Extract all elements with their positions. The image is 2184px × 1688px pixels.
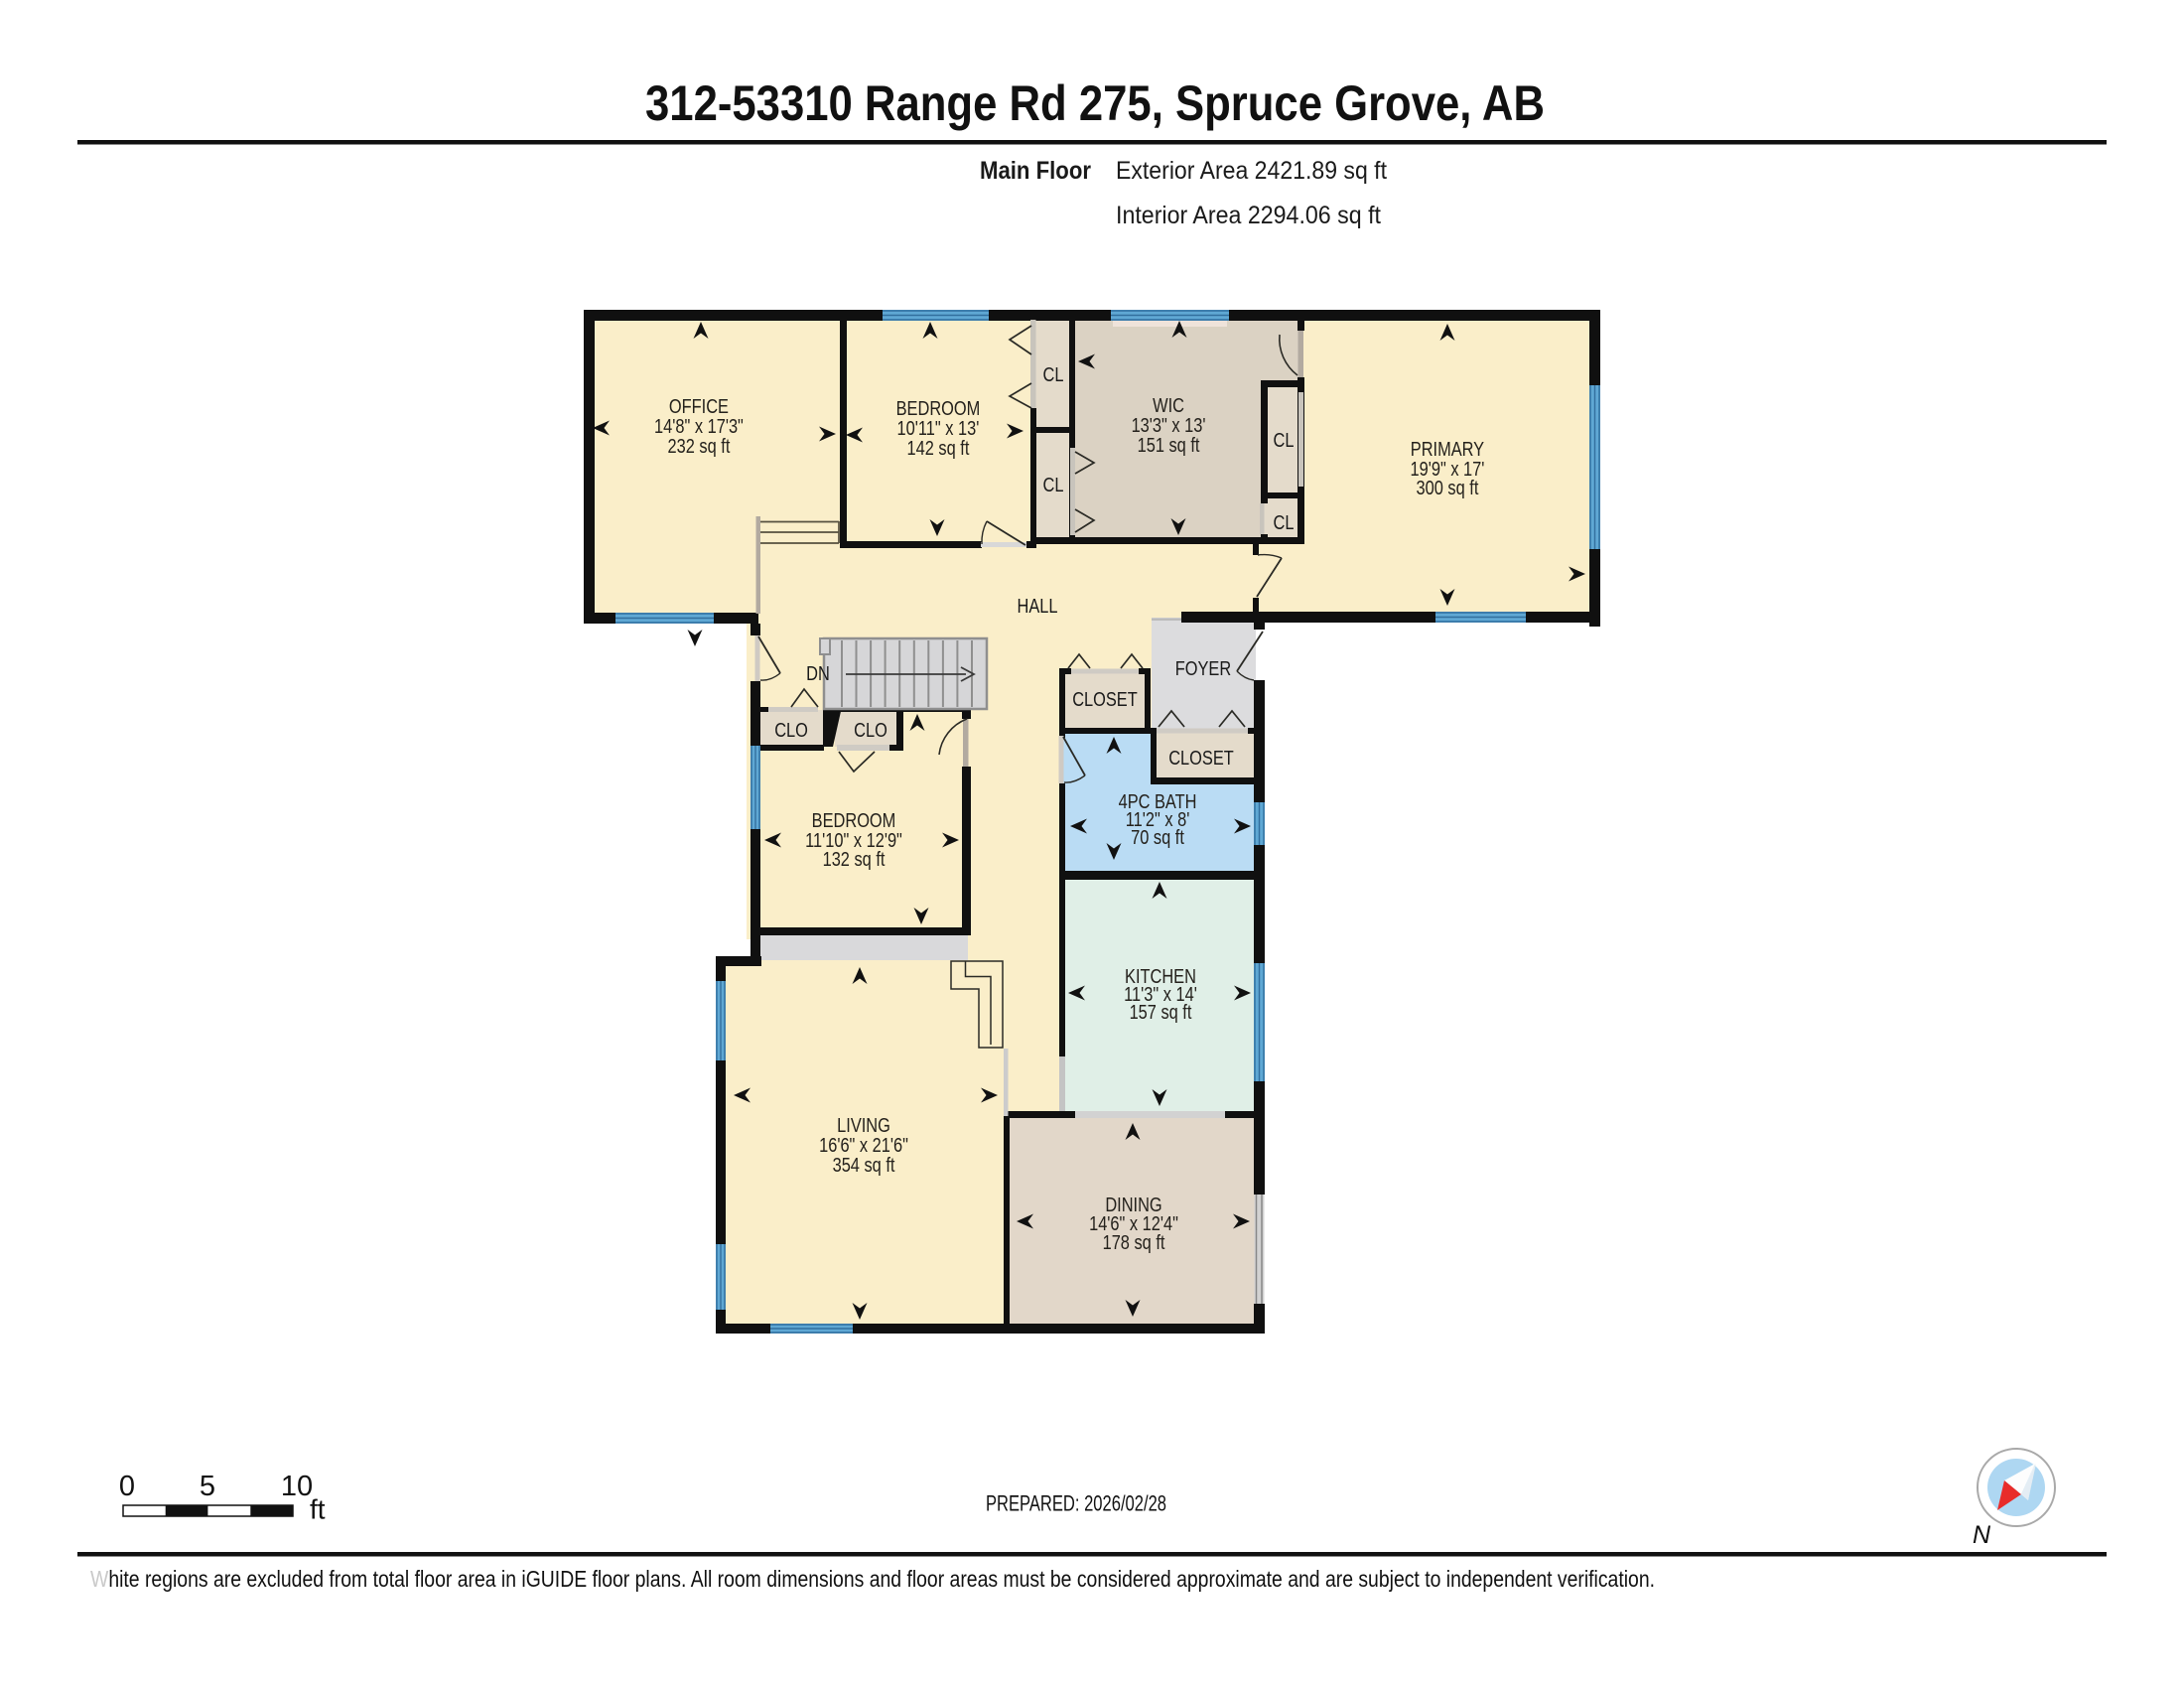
svg-text:300 sq ft: 300 sq ft xyxy=(1417,477,1479,499)
svg-text:CL: CL xyxy=(1274,429,1295,452)
svg-text:CLOSET: CLOSET xyxy=(1072,688,1138,711)
svg-text:PREPARED: 2026/02/28: PREPARED: 2026/02/28 xyxy=(986,1491,1166,1516)
svg-text:CLOSET: CLOSET xyxy=(1168,747,1234,770)
svg-text:CLO: CLO xyxy=(774,719,808,742)
svg-text:157 sq ft: 157 sq ft xyxy=(1130,1001,1192,1024)
svg-text:Interior Area 2294.06 sq ft: Interior Area 2294.06 sq ft xyxy=(1116,202,1381,229)
svg-text:142 sq ft: 142 sq ft xyxy=(907,437,970,460)
svg-text:70 sq ft: 70 sq ft xyxy=(1131,826,1184,849)
svg-text:FOYER: FOYER xyxy=(1175,657,1231,680)
svg-text:5: 5 xyxy=(200,1471,215,1502)
svg-text:ft: ft xyxy=(310,1494,326,1525)
svg-text:HALL: HALL xyxy=(1018,595,1058,618)
svg-text:CL: CL xyxy=(1274,511,1295,534)
svg-text:151 sq ft: 151 sq ft xyxy=(1138,434,1200,457)
svg-text:232 sq ft: 232 sq ft xyxy=(668,435,731,458)
svg-text:Main Floor: Main Floor xyxy=(980,157,1091,185)
svg-text:312-53310 Range Rd 275, Spruce: 312-53310 Range Rd 275, Spruce Grove, AB xyxy=(645,75,1545,131)
svg-text:DN: DN xyxy=(806,662,830,685)
svg-text:White regions are excluded fro: White regions are excluded from total fl… xyxy=(90,1566,1655,1592)
svg-text:132 sq ft: 132 sq ft xyxy=(823,848,886,871)
svg-text:0: 0 xyxy=(119,1471,135,1502)
svg-text:CL: CL xyxy=(1043,474,1064,496)
svg-text:354 sq ft: 354 sq ft xyxy=(833,1154,895,1177)
svg-text:10: 10 xyxy=(281,1471,313,1502)
svg-text:N: N xyxy=(1973,1521,1991,1549)
svg-text:CL: CL xyxy=(1043,363,1064,386)
svg-text:CLO: CLO xyxy=(854,719,887,742)
svg-text:178 sq ft: 178 sq ft xyxy=(1103,1231,1165,1254)
svg-text:Exterior Area 2421.89 sq ft: Exterior Area 2421.89 sq ft xyxy=(1116,157,1387,185)
